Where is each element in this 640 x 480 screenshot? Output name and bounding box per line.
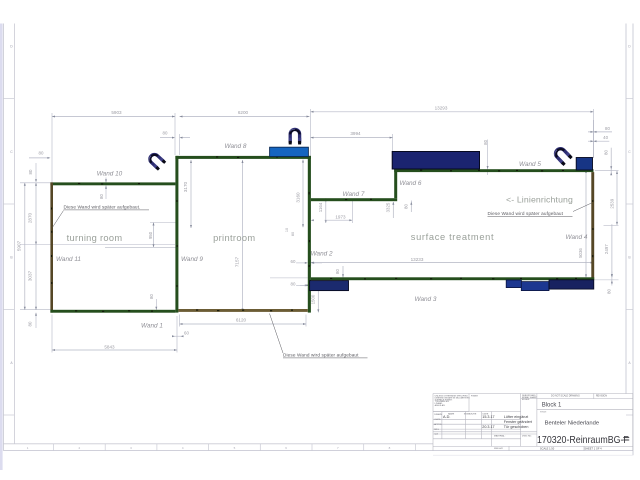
svg-text:EDGES: EDGES: [522, 399, 530, 401]
svg-text:Wand 7: Wand 7: [343, 191, 365, 198]
svg-text:6120: 6120: [236, 317, 247, 322]
svg-text:80: 80: [149, 294, 154, 299]
svg-text:MATERIAL:: MATERIAL:: [494, 435, 506, 438]
svg-text:Wand 4: Wand 4: [566, 234, 588, 241]
svg-text:CHK'D: CHK'D: [434, 419, 441, 421]
svg-text:A.D.: A.D.: [443, 415, 450, 419]
svg-text:80: 80: [291, 232, 295, 236]
svg-text:Benteler Niederlande: Benteler Niederlande: [545, 421, 599, 427]
svg-text:Diese Wand wird später aufgeba: Diese Wand wird später aufgebaut.: [64, 205, 141, 210]
svg-text:60: 60: [184, 330, 189, 335]
svg-text:3160: 3160: [296, 192, 301, 203]
svg-text:7157: 7157: [234, 256, 239, 267]
svg-text:3170: 3170: [183, 181, 188, 192]
svg-text:printroom: printroom: [213, 233, 255, 243]
svg-text:80: 80: [39, 151, 44, 156]
svg-text:Wand 3: Wand 3: [415, 296, 437, 303]
svg-text:FINISH: FINISH: [471, 396, 478, 398]
svg-text:80: 80: [163, 131, 168, 136]
svg-text:5903: 5903: [111, 110, 122, 115]
svg-text:Diese Wand wird später aufgeba: Diese Wand wird später aufgebaut: [283, 353, 359, 358]
svg-text:Wand 6: Wand 6: [400, 180, 422, 187]
svg-text:2497: 2497: [604, 244, 609, 254]
svg-text:Wand 2: Wand 2: [311, 250, 333, 257]
svg-text:Wand 1: Wand 1: [141, 322, 163, 329]
svg-text:3325: 3325: [385, 202, 390, 212]
svg-text:80: 80: [291, 282, 296, 287]
svg-text:10: 10: [285, 228, 289, 232]
svg-text:DO NOT SCALE DRAWING: DO NOT SCALE DRAWING: [551, 395, 580, 398]
svg-text:15.3.17: 15.3.17: [482, 415, 494, 419]
svg-text:Wand 5: Wand 5: [519, 161, 541, 168]
svg-text:1500: 1500: [311, 294, 316, 304]
svg-text:5843: 5843: [104, 345, 115, 350]
svg-text:60: 60: [291, 259, 296, 264]
svg-text:Wand 10: Wand 10: [97, 170, 123, 177]
svg-text:SIGNATURE: SIGNATURE: [464, 412, 477, 415]
svg-text:APPV'D: APPV'D: [434, 423, 442, 426]
svg-text:Q.A: Q.A: [434, 433, 438, 436]
svg-text:WEIGHT:: WEIGHT:: [494, 448, 504, 450]
svg-text:80: 80: [604, 150, 609, 155]
svg-text:80: 80: [483, 139, 488, 144]
svg-text:turning room: turning room: [67, 233, 123, 243]
svg-text:Fenster geändert: Fenster geändert: [504, 420, 532, 424]
svg-text:3037: 3037: [28, 270, 33, 281]
svg-text:20.3.17: 20.3.17: [482, 425, 494, 429]
svg-text:Wand 9: Wand 9: [181, 256, 203, 263]
svg-text:6200: 6200: [238, 110, 249, 115]
svg-text:surface treatment: surface treatment: [411, 232, 494, 242]
svg-text:REVISION: REVISION: [596, 396, 607, 398]
svg-text:DRAWN: DRAWN: [434, 413, 442, 416]
svg-text:80: 80: [99, 194, 104, 199]
svg-text:5036: 5036: [578, 248, 583, 258]
svg-text:1164: 1164: [318, 202, 323, 212]
svg-text:Wand 8: Wand 8: [225, 143, 247, 150]
svg-text:13293: 13293: [435, 106, 448, 111]
svg-text:5907: 5907: [16, 240, 21, 251]
svg-text:Lüfter eingänzt: Lüfter eingänzt: [504, 415, 528, 419]
svg-text:Block 1: Block 1: [542, 402, 562, 408]
svg-text:SCALE 1:50: SCALE 1:50: [540, 446, 555, 450]
svg-text:80: 80: [28, 321, 33, 326]
svg-text:<- Linienrichtung: <- Linienrichtung: [506, 194, 573, 204]
svg-text:80: 80: [28, 169, 33, 174]
svg-text:80: 80: [404, 204, 409, 209]
svg-text:170320-ReinraumBG-F: 170320-ReinraumBG-F: [537, 435, 629, 446]
svg-text:80: 80: [606, 289, 611, 294]
svg-text:40: 40: [603, 135, 608, 140]
svg-text:Wand 11: Wand 11: [56, 256, 81, 263]
svg-text:1973: 1973: [335, 215, 346, 220]
svg-text:2539: 2539: [610, 198, 615, 208]
svg-text:80: 80: [605, 126, 610, 131]
svg-text:Tür geschoben: Tür geschoben: [504, 425, 529, 429]
svg-text:3994: 3994: [350, 131, 361, 136]
svg-text:13233: 13233: [411, 257, 424, 262]
svg-text:950: 950: [148, 231, 153, 239]
svg-text:MFG: MFG: [434, 429, 439, 431]
svg-text:DWG NO.: DWG NO.: [522, 436, 532, 438]
svg-text:SHEET 1 OF 4: SHEET 1 OF 4: [584, 446, 602, 450]
svg-text:80: 80: [335, 269, 340, 274]
svg-text:Diese Wand wird später aufgeba: Diese Wand wird später aufgebaut: [488, 211, 564, 216]
svg-text:2870: 2870: [28, 212, 33, 223]
svg-text:TITLE:: TITLE:: [540, 412, 547, 414]
svg-text:ANGULAR:: ANGULAR:: [435, 404, 446, 407]
